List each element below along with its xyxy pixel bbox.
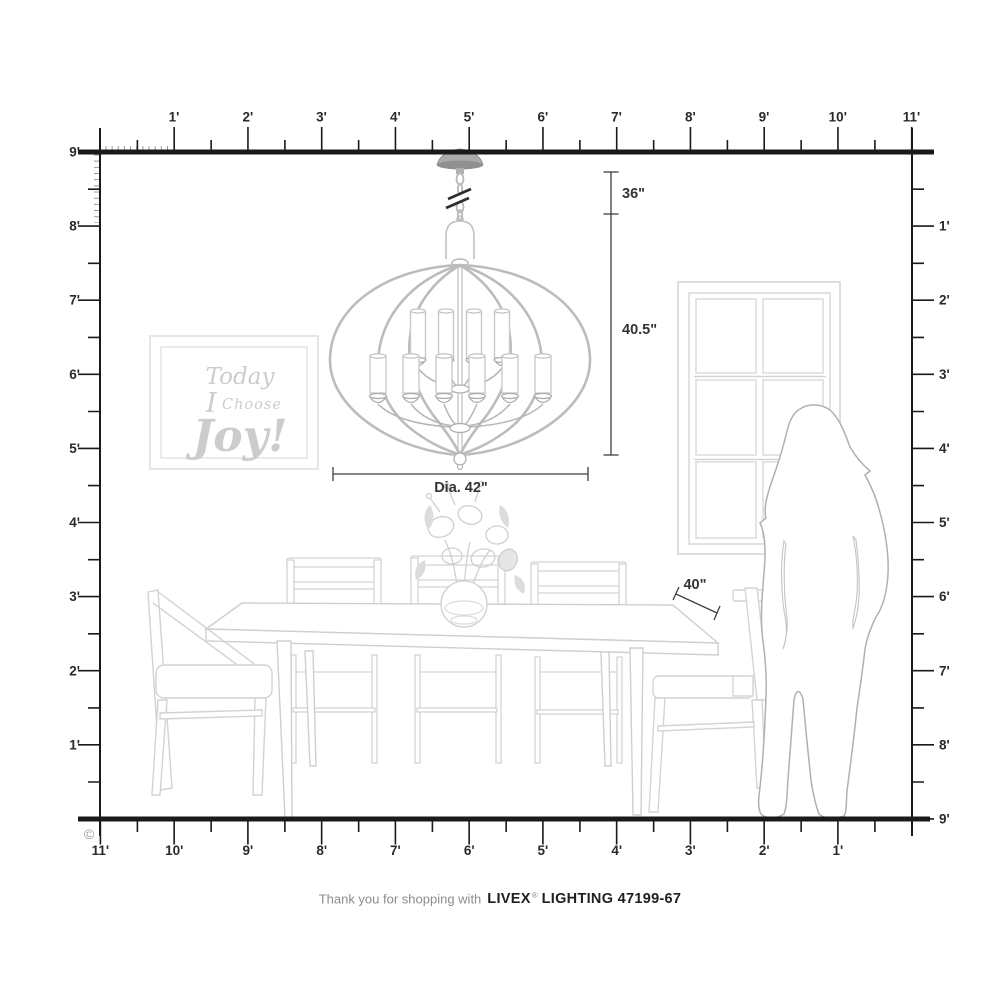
- scale-diagram-svg: Today I Choose Joy!: [0, 0, 1000, 1000]
- svg-text:5': 5': [939, 515, 950, 530]
- svg-text:10': 10': [829, 110, 847, 125]
- svg-text:3': 3': [69, 589, 80, 604]
- dimension-lines: [333, 172, 720, 620]
- svg-text:9': 9': [759, 110, 770, 125]
- svg-text:6': 6': [464, 843, 475, 858]
- svg-text:8': 8': [939, 737, 950, 752]
- svg-text:4': 4': [69, 515, 80, 530]
- svg-text:6': 6': [537, 110, 548, 125]
- dimension-fixture-height: 40.5": [622, 322, 657, 338]
- person-silhouette: [759, 405, 889, 818]
- svg-text:7': 7': [390, 843, 401, 858]
- svg-text:11': 11': [92, 843, 109, 858]
- svg-text:4': 4': [611, 843, 622, 858]
- svg-text:6': 6': [69, 367, 80, 382]
- svg-text:3': 3': [316, 110, 327, 125]
- svg-text:8': 8': [316, 843, 327, 858]
- svg-text:9': 9': [939, 812, 950, 827]
- svg-text:2': 2': [69, 663, 80, 678]
- bottom-ruler-labels: 11' 10' 9' 8' 7' 6' 5' 4' 3' 2' 1': [92, 843, 844, 858]
- svg-text:4': 4': [390, 110, 401, 125]
- svg-text:1': 1': [833, 843, 844, 858]
- wall-art-line3: Joy!: [185, 411, 287, 462]
- chandelier-drawing: [330, 149, 590, 470]
- wall-art: Today I Choose Joy!: [150, 336, 318, 469]
- svg-text:3': 3': [685, 843, 696, 858]
- footer-product: LIGHTING 47199-67: [542, 891, 682, 907]
- svg-text:7': 7': [69, 293, 80, 308]
- svg-text:5': 5': [464, 110, 475, 125]
- footer: Thank you for shopping withLIVEX®LIGHTIN…: [0, 891, 1000, 907]
- svg-text:5': 5': [69, 441, 80, 456]
- svg-text:2': 2': [759, 843, 770, 858]
- chain: [457, 174, 464, 221]
- left-ruler-labels: 9' 8' 7' 6' 5' 4' 3' 2' 1': [69, 145, 80, 753]
- wall-art-line1: Today: [206, 364, 276, 390]
- dimension-fixture-diameter: Dia. 42": [434, 480, 488, 496]
- svg-text:1': 1': [939, 219, 950, 234]
- right-ruler-labels: 1' 2' 3' 4' 5' 6' 7' 8' 9': [939, 219, 950, 827]
- svg-text:1': 1': [169, 110, 180, 125]
- svg-text:2': 2': [242, 110, 253, 125]
- svg-text:10': 10': [165, 843, 183, 858]
- svg-text:7': 7': [611, 110, 622, 125]
- svg-text:8': 8': [69, 219, 80, 234]
- dimension-hang-length: 36": [622, 186, 645, 202]
- svg-text:9': 9': [69, 145, 80, 160]
- copyright-symbol: ©: [84, 826, 95, 842]
- top-ruler-labels: 1' 2' 3' 4' 5' 6' 7' 8' 9' 10' 11': [169, 110, 921, 125]
- svg-text:1': 1': [69, 737, 80, 752]
- svg-text:7': 7': [939, 663, 950, 678]
- svg-text:5': 5': [538, 843, 549, 858]
- svg-text:2': 2': [939, 293, 950, 308]
- dimension-table-width: 40": [683, 577, 706, 593]
- registered-trademark-icon: ®: [532, 891, 538, 900]
- svg-text:9': 9': [243, 843, 254, 858]
- footer-brand: LIVEX: [487, 891, 530, 907]
- svg-text:4': 4': [939, 441, 950, 456]
- svg-text:11': 11': [903, 110, 920, 125]
- svg-text:3': 3': [939, 367, 950, 382]
- svg-text:8': 8': [685, 110, 696, 125]
- upper-candles: [410, 309, 510, 393]
- svg-text:6': 6': [939, 589, 950, 604]
- room-scale-diagram: Today I Choose Joy!: [0, 0, 1000, 1000]
- footer-message: Thank you for shopping with: [319, 891, 482, 906]
